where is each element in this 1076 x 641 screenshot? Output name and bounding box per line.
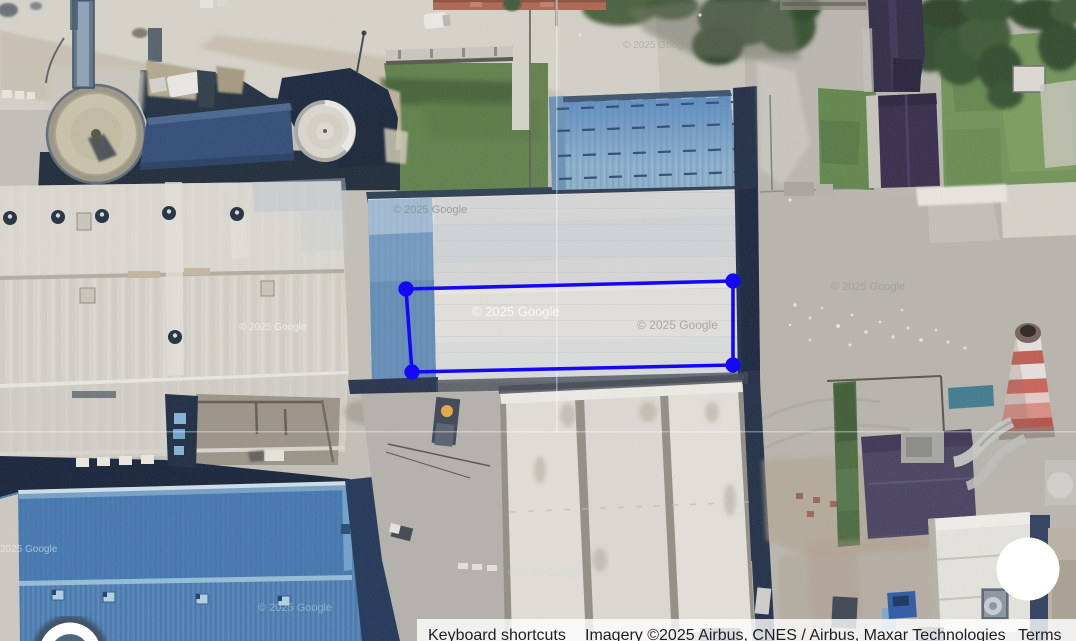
svg-text:© 2025 Google: © 2025 Google bbox=[472, 304, 560, 319]
svg-text:Imagery ©2025 Airbus, CNES / A: Imagery ©2025 Airbus, CNES / Airbus, Max… bbox=[585, 627, 1006, 641]
svg-text:© 2025 Google: © 2025 Google bbox=[258, 602, 332, 614]
svg-text:© 2025 Google: © 2025 Google bbox=[623, 40, 691, 51]
svg-text:© 2025 Google: © 2025 Google bbox=[239, 322, 307, 333]
svg-text:2025 Google: 2025 Google bbox=[0, 544, 58, 555]
svg-text:Keyboard shortcuts: Keyboard shortcuts bbox=[428, 627, 566, 641]
svg-text:© 2025 Google: © 2025 Google bbox=[637, 318, 718, 332]
svg-text:© 2025 Google: © 2025 Google bbox=[393, 204, 467, 216]
svg-text:© 2025 Google: © 2025 Google bbox=[831, 281, 905, 293]
svg-text:Terms: Terms bbox=[1018, 627, 1062, 641]
svg-text:© 2025 Google: © 2025 Google bbox=[508, 567, 582, 579]
